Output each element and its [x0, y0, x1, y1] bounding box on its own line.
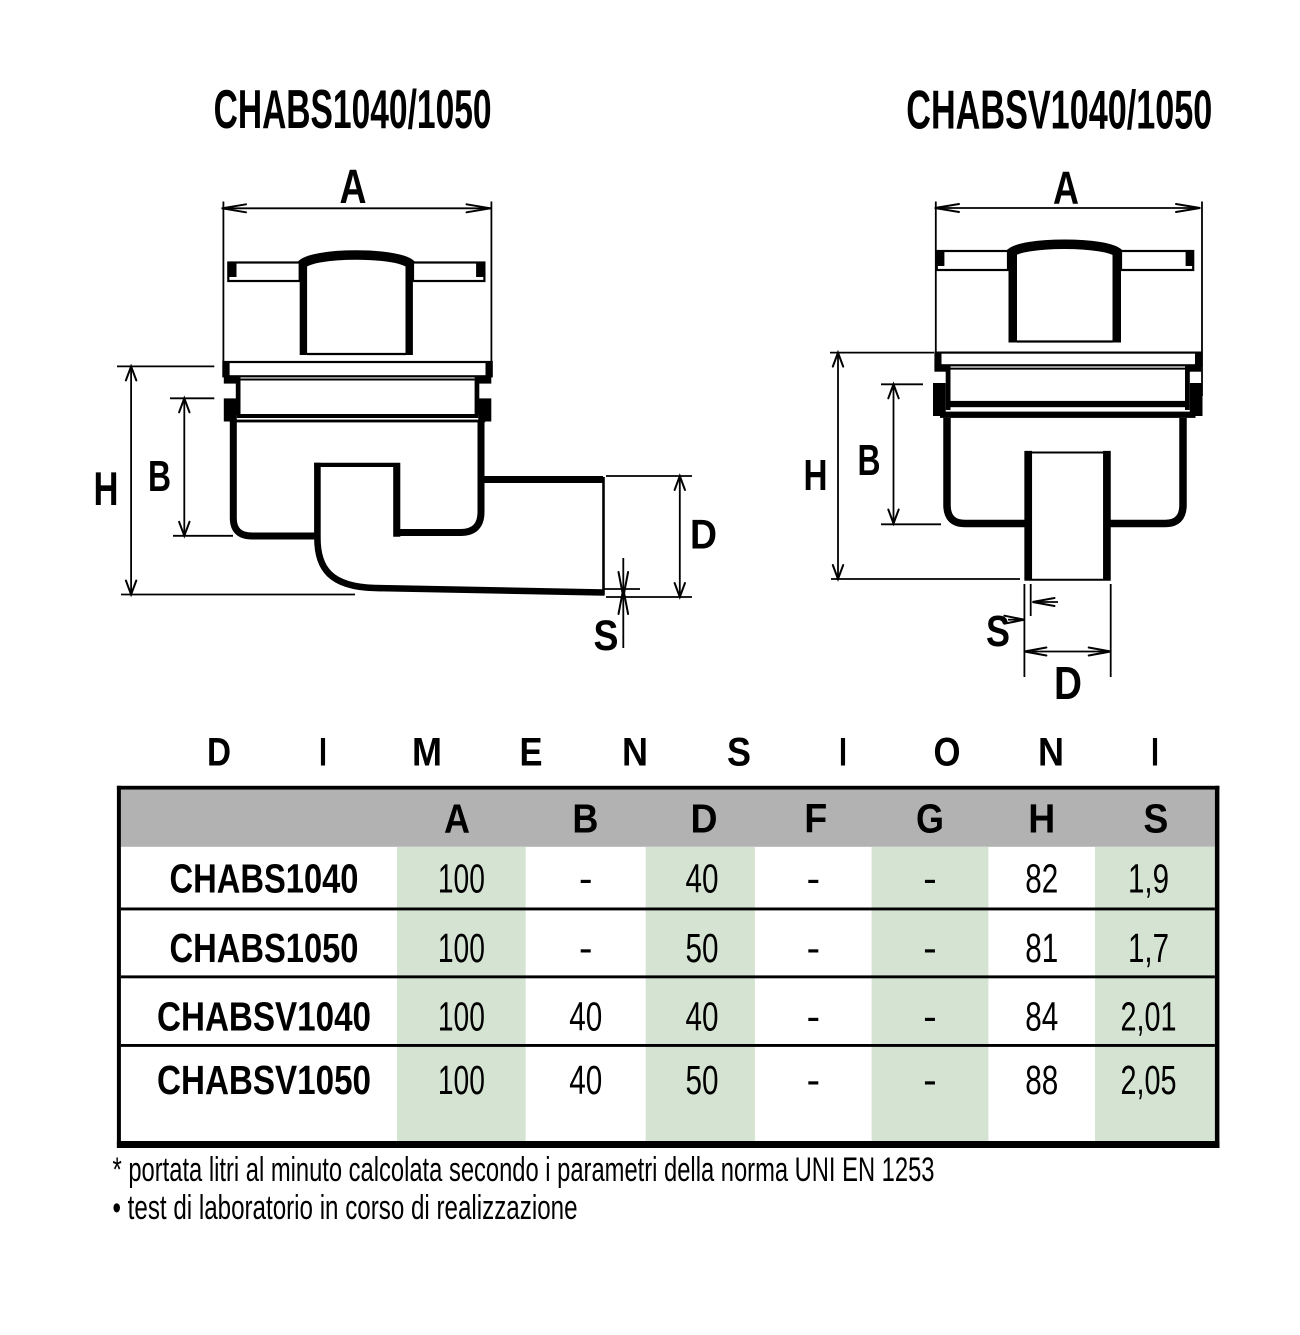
- svg-text:N: N: [622, 731, 648, 775]
- svg-text:-: -: [923, 1057, 937, 1103]
- svg-text:2,01: 2,01: [1121, 994, 1177, 1040]
- svg-text:CHABS1040: CHABS1040: [170, 856, 359, 902]
- svg-text:B: B: [858, 436, 881, 485]
- svg-text:-: -: [579, 925, 593, 971]
- svg-text:-: -: [806, 1057, 820, 1103]
- svg-text:84: 84: [1025, 994, 1058, 1040]
- svg-text:CHABS1050: CHABS1050: [170, 925, 359, 971]
- svg-text:40: 40: [686, 856, 719, 902]
- svg-text:A: A: [340, 161, 367, 214]
- svg-text:M: M: [412, 731, 442, 775]
- svg-text:S: S: [594, 612, 619, 660]
- svg-text:D: D: [691, 796, 718, 842]
- svg-text:40: 40: [569, 994, 602, 1040]
- svg-text:H: H: [1028, 796, 1055, 842]
- svg-text:I: I: [839, 731, 847, 775]
- svg-text:50: 50: [686, 925, 719, 971]
- svg-text:50: 50: [686, 1057, 719, 1103]
- svg-text:1,9: 1,9: [1128, 856, 1169, 902]
- svg-text:D: D: [1054, 657, 1082, 709]
- svg-text:A: A: [1053, 161, 1079, 213]
- svg-text:S: S: [1143, 796, 1168, 842]
- svg-text:CHABS1040/1050: CHABS1040/1050: [214, 78, 492, 140]
- svg-text:H: H: [94, 462, 119, 515]
- svg-text:H: H: [804, 451, 828, 500]
- svg-text:• test di laboratorio in corso: • test di laboratorio in corso di realiz…: [113, 1189, 578, 1227]
- svg-text:-: -: [923, 994, 937, 1040]
- svg-text:CHABSV1050: CHABSV1050: [157, 1057, 371, 1103]
- svg-text:40: 40: [686, 994, 719, 1040]
- svg-text:40: 40: [569, 1057, 602, 1103]
- svg-text:100: 100: [438, 925, 485, 971]
- svg-text:* portata litri al minuto calc: * portata litri al minuto calcolata seco…: [113, 1151, 935, 1189]
- svg-text:2,05: 2,05: [1121, 1057, 1177, 1103]
- svg-text:-: -: [806, 856, 820, 902]
- svg-text:-: -: [806, 925, 820, 971]
- svg-text:I: I: [1151, 731, 1159, 775]
- svg-text:81: 81: [1025, 925, 1058, 971]
- svg-text:B: B: [572, 796, 598, 842]
- svg-text:S: S: [986, 607, 1010, 656]
- svg-text:CHABSV1040/1050: CHABSV1040/1050: [906, 79, 1212, 141]
- svg-text:CHABSV1040: CHABSV1040: [157, 994, 371, 1040]
- svg-text:100: 100: [438, 1057, 485, 1103]
- svg-text:D: D: [690, 511, 717, 558]
- svg-text:F: F: [804, 796, 827, 842]
- svg-text:A: A: [444, 796, 470, 842]
- svg-text:-: -: [923, 925, 937, 971]
- svg-text:S: S: [727, 731, 751, 775]
- svg-text:100: 100: [438, 994, 485, 1040]
- svg-text:N: N: [1038, 731, 1064, 775]
- svg-text:82: 82: [1025, 856, 1058, 902]
- svg-text:G: G: [916, 796, 944, 842]
- svg-text:-: -: [579, 856, 593, 902]
- svg-text:O: O: [934, 731, 961, 775]
- svg-text:E: E: [520, 731, 543, 775]
- svg-text:1,7: 1,7: [1128, 925, 1169, 971]
- svg-text:-: -: [806, 994, 820, 1040]
- svg-text:100: 100: [438, 856, 485, 902]
- svg-text:B: B: [148, 452, 171, 501]
- svg-text:88: 88: [1025, 1057, 1058, 1103]
- svg-text:-: -: [923, 856, 937, 902]
- svg-text:I: I: [319, 731, 327, 775]
- svg-text:D: D: [207, 731, 231, 775]
